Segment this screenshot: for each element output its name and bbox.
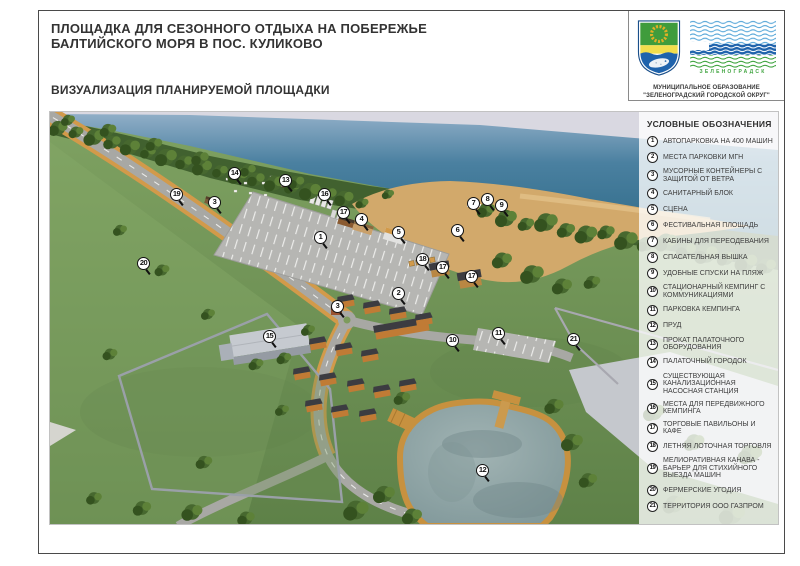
legend-panel: УСЛОВНЫЕ ОБОЗНАЧЕНИЯ 1АВТОПАРКОВКА НА 40… [639,112,778,524]
map-marker-12: 12 [476,464,489,477]
legend-item-18: 18ЛЕТНЯЯ ЛОТОЧНАЯ ТОРГОВЛЯ [647,441,774,452]
logo-row: ЗЕЛЕНОГРАДСК [637,20,776,81]
map-marker-16: 16 [318,188,331,201]
legend-item-label: ФЕСТИВАЛЬНАЯ ПЛОЩАДЬ [663,222,758,230]
page-subtitle: ВИЗУАЛИЗАЦИЯ ПЛАНИРУЕМОЙ ПЛОЩАДКИ [51,83,330,97]
legend-item-number: 5 [647,204,658,215]
legend-item-12: 12ПРУД [647,321,774,332]
legend-item-19: 19МЕЛИОРАТИВНАЯ КАНАВА - БАРЬЕР ДЛЯ СТИХ… [647,457,774,480]
legend-item-label: ПРУД [663,322,681,330]
legend-item-number: 12 [647,321,658,332]
map-marker-17: 17 [436,261,449,274]
legend-item-number: 18 [647,441,658,452]
legend-item-label: ЛЕТНЯЯ ЛОТОЧНАЯ ТОРГОВЛЯ [663,443,772,451]
legend-item-label: ФЕРМЕРСКИЕ УГОДИЯ [663,487,741,495]
municipality-line1: МУНИЦИПАЛЬНОЕ ОБРАЗОВАНИЕ [643,85,770,93]
legend-item-number: 3 [647,170,658,181]
legend-item-label: СПАСАТЕЛЬНАЯ ВЫШКА [663,254,748,262]
map-marker-18: 18 [416,253,429,266]
map-marker-7: 7 [467,197,480,210]
legend-item-11: 11ПАРКОВКА КЕМПИНГА [647,305,774,316]
legend-item-number: 6 [647,220,658,231]
legend-item-label: САНИТАРНЫЙ БЛОК [663,190,733,198]
legend-item-number: 19 [647,463,658,474]
title-block: ПЛОЩАДКА ДЛЯ СЕЗОННОГО ОТДЫХА НА ПОБЕРЕЖ… [51,21,427,51]
map-marker-9: 9 [495,199,508,212]
municipality-line2: "ЗЕЛЕНОГРАДСКИЙ ГОРОДСКОЙ ОКРУГ" [643,93,770,101]
legend-item-label: АВТОПАРКОВКА НА 400 МАШИН [663,138,773,146]
legend-item-label: ПРОКАТ ПАЛАТОЧНОГО ОБОРУДОВАНИЯ [663,337,774,352]
legend-item-label: ТЕРРИТОРИЯ ООО ГАЗПРОМ [663,503,764,511]
legend-item-7: 7КАБИНЫ ДЛЯ ПЕРЕОДЕВАНИЯ [647,236,774,247]
zelenogradsk-coat-of-arms-icon [637,20,681,81]
legend-item-17: 17ТОРГОВЫЕ ПАВИЛЬОНЫ И КАФЕ [647,421,774,436]
legend-item-1: 1АВТОПАРКОВКА НА 400 МАШИН [647,136,774,147]
legend-item-13: 13ПРОКАТ ПАЛАТОЧНОГО ОБОРУДОВАНИЯ [647,337,774,352]
map-marker-15: 15 [263,330,276,343]
map-marker-5: 5 [392,226,405,239]
map-marker-1: 1 [314,231,327,244]
legend-item-label: СУЩЕСТВУЮЩАЯ КАНАЛИЗАЦИОННАЯ НАСОСНАЯ СТ… [663,373,774,396]
legend-item-label: ПАЛАТОЧНЫЙ ГОРОДОК [663,358,747,366]
page-title-line1: ПЛОЩАДКА ДЛЯ СЕЗОННОГО ОТДЫХА НА ПОБЕРЕЖ… [51,21,427,36]
legend-item-20: 20ФЕРМЕРСКИЕ УГОДИЯ [647,485,774,496]
legend-item-number: 13 [647,339,658,350]
legend-item-label: МЕСТА ПАРКОВКИ МГН [663,154,743,162]
map-marker-3: 3 [208,196,221,209]
legend-item-number: 2 [647,152,658,163]
legend-item-21: 21ТЕРРИТОРИЯ ООО ГАЗПРОМ [647,501,774,512]
map-marker-10: 10 [446,334,459,347]
map-marker-14: 14 [228,167,241,180]
map-marker-4: 4 [355,213,368,226]
legend-item-16: 16МЕСТА ДЛЯ ПЕРЕДВИЖНОГО КЕМПИНГА [647,401,774,416]
map-marker-2: 2 [392,287,405,300]
legend-item-label: МЕСТА ДЛЯ ПЕРЕДВИЖНОГО КЕМПИНГА [663,401,774,416]
legend-item-label: СЦЕНА [663,206,688,214]
legend-item-3: 3МУСОРНЫЕ КОНТЕЙНЕРЫ С ЗАЩИТОЙ ОТ ВЕТРА [647,168,774,183]
legend-item-10: 10СТАЦИОНАРНЫЙ КЕМПИНГ С КОММУНИКАЦИЯМИ [647,284,774,299]
legend-item-number: 10 [647,286,658,297]
municipality-name: МУНИЦИПАЛЬНОЕ ОБРАЗОВАНИЕ "ЗЕЛЕНОГРАДСКИ… [643,85,770,100]
legend-item-label: МЕЛИОРАТИВНАЯ КАНАВА - БАРЬЕР ДЛЯ СТИХИЙ… [663,457,774,480]
legend-item-number: 16 [647,403,658,414]
map-marker-17: 17 [337,206,350,219]
legend-item-2: 2МЕСТА ПАРКОВКИ МГН [647,152,774,163]
map-marker-13: 13 [279,174,292,187]
legend-item-number: 20 [647,485,658,496]
legend-item-15: 15СУЩЕСТВУЮЩАЯ КАНАЛИЗАЦИОННАЯ НАСОСНАЯ … [647,373,774,396]
map-marker-17: 17 [465,270,478,283]
legend-item-label: ПАРКОВКА КЕМПИНГА [663,306,740,314]
legend-item-number: 21 [647,501,658,512]
legend-item-4: 4САНИТАРНЫЙ БЛОК [647,188,774,199]
site-plan-visualization: 12334567891011121314151617171718192021 У… [49,111,779,525]
zelenogradsk-waves-logo-icon: ЗЕЛЕНОГРАДСК [690,20,776,75]
legend-item-number: 17 [647,423,658,434]
legend-item-number: 7 [647,236,658,247]
legend-list: 1АВТОПАРКОВКА НА 400 МАШИН2МЕСТА ПАРКОВК… [647,136,774,512]
map-marker-11: 11 [492,327,505,340]
legend-item-5: 5СЦЕНА [647,204,774,215]
wave-logo-caption: ЗЕЛЕНОГРАДСК [700,69,767,75]
map-marker-21: 21 [567,333,580,346]
legend-item-label: ТОРГОВЫЕ ПАВИЛЬОНЫ И КАФЕ [663,421,774,436]
legend-item-number: 1 [647,136,658,147]
map-marker-8: 8 [481,193,494,206]
legend-item-9: 9УДОБНЫЕ СПУСКИ НА ПЛЯЖ [647,268,774,279]
legend-item-number: 14 [647,357,658,368]
legend-item-label: МУСОРНЫЕ КОНТЕЙНЕРЫ С ЗАЩИТОЙ ОТ ВЕТРА [663,168,774,183]
legend-item-number: 8 [647,252,658,263]
map-marker-20: 20 [137,257,150,270]
legend-item-number: 4 [647,188,658,199]
map-marker-3: 3 [331,300,344,313]
legend-item-label: СТАЦИОНАРНЫЙ КЕМПИНГ С КОММУНИКАЦИЯМИ [663,284,774,299]
map-marker-6: 6 [451,224,464,237]
legend-item-8: 8СПАСАТЕЛЬНАЯ ВЫШКА [647,252,774,263]
legend-item-number: 15 [647,379,658,390]
municipality-logo-box: ЗЕЛЕНОГРАДСК МУНИЦИПАЛЬНОЕ ОБРАЗОВАНИЕ "… [628,11,784,101]
legend-item-label: УДОБНЫЕ СПУСКИ НА ПЛЯЖ [663,270,763,278]
legend-item-number: 9 [647,268,658,279]
page-title-line2: БАЛТИЙСКОГО МОРЯ В ПОС. КУЛИКОВО [51,36,427,51]
legend-item-6: 6ФЕСТИВАЛЬНАЯ ПЛОЩАДЬ [647,220,774,231]
map-marker-19: 19 [170,188,183,201]
legend-item-label: КАБИНЫ ДЛЯ ПЕРЕОДЕВАНИЯ [663,238,769,246]
legend-title: УСЛОВНЫЕ ОБОЗНАЧЕНИЯ [647,119,774,129]
legend-item-14: 14ПАЛАТОЧНЫЙ ГОРОДОК [647,357,774,368]
legend-item-number: 11 [647,305,658,316]
sheet-frame: ПЛОЩАДКА ДЛЯ СЕЗОННОГО ОТДЫХА НА ПОБЕРЕЖ… [38,10,785,554]
